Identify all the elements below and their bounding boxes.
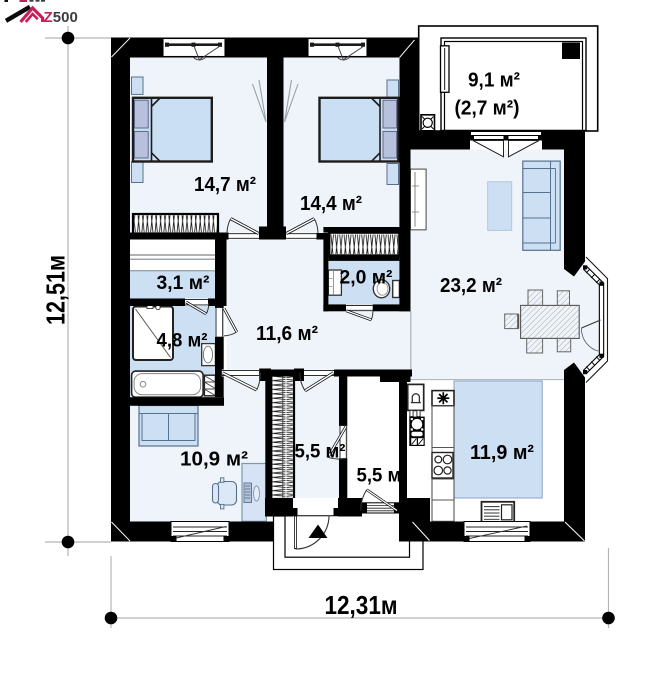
svg-text:4,8 м²: 4,8 м² bbox=[157, 331, 208, 352]
svg-text:5,5 м²: 5,5 м² bbox=[357, 466, 408, 487]
svg-text:5,5 м²: 5,5 м² bbox=[295, 442, 346, 463]
svg-text:3,1 м²: 3,1 м² bbox=[157, 273, 210, 294]
svg-text:(2,7 м²): (2,7 м²) bbox=[455, 98, 520, 120]
svg-text:11,9 м²: 11,9 м² bbox=[470, 442, 534, 464]
svg-text:11,6 м²: 11,6 м² bbox=[256, 323, 318, 345]
svg-text:2,0 м²: 2,0 м² bbox=[340, 268, 393, 289]
svg-text:12,31м: 12,31м bbox=[325, 590, 398, 620]
svg-text:10,9 м²: 10,9 м² bbox=[180, 449, 248, 471]
svg-text:500: 500 bbox=[53, 9, 78, 26]
svg-text:23,2 м²: 23,2 м² bbox=[440, 275, 502, 297]
svg-text:9,1 м²: 9,1 м² bbox=[468, 70, 520, 92]
svg-text:14,4 м²: 14,4 м² bbox=[300, 193, 362, 215]
svg-text:Z: Z bbox=[44, 9, 53, 26]
svg-text:14,7 м²: 14,7 м² bbox=[194, 174, 256, 196]
svg-text:12,51м: 12,51м bbox=[41, 255, 71, 325]
